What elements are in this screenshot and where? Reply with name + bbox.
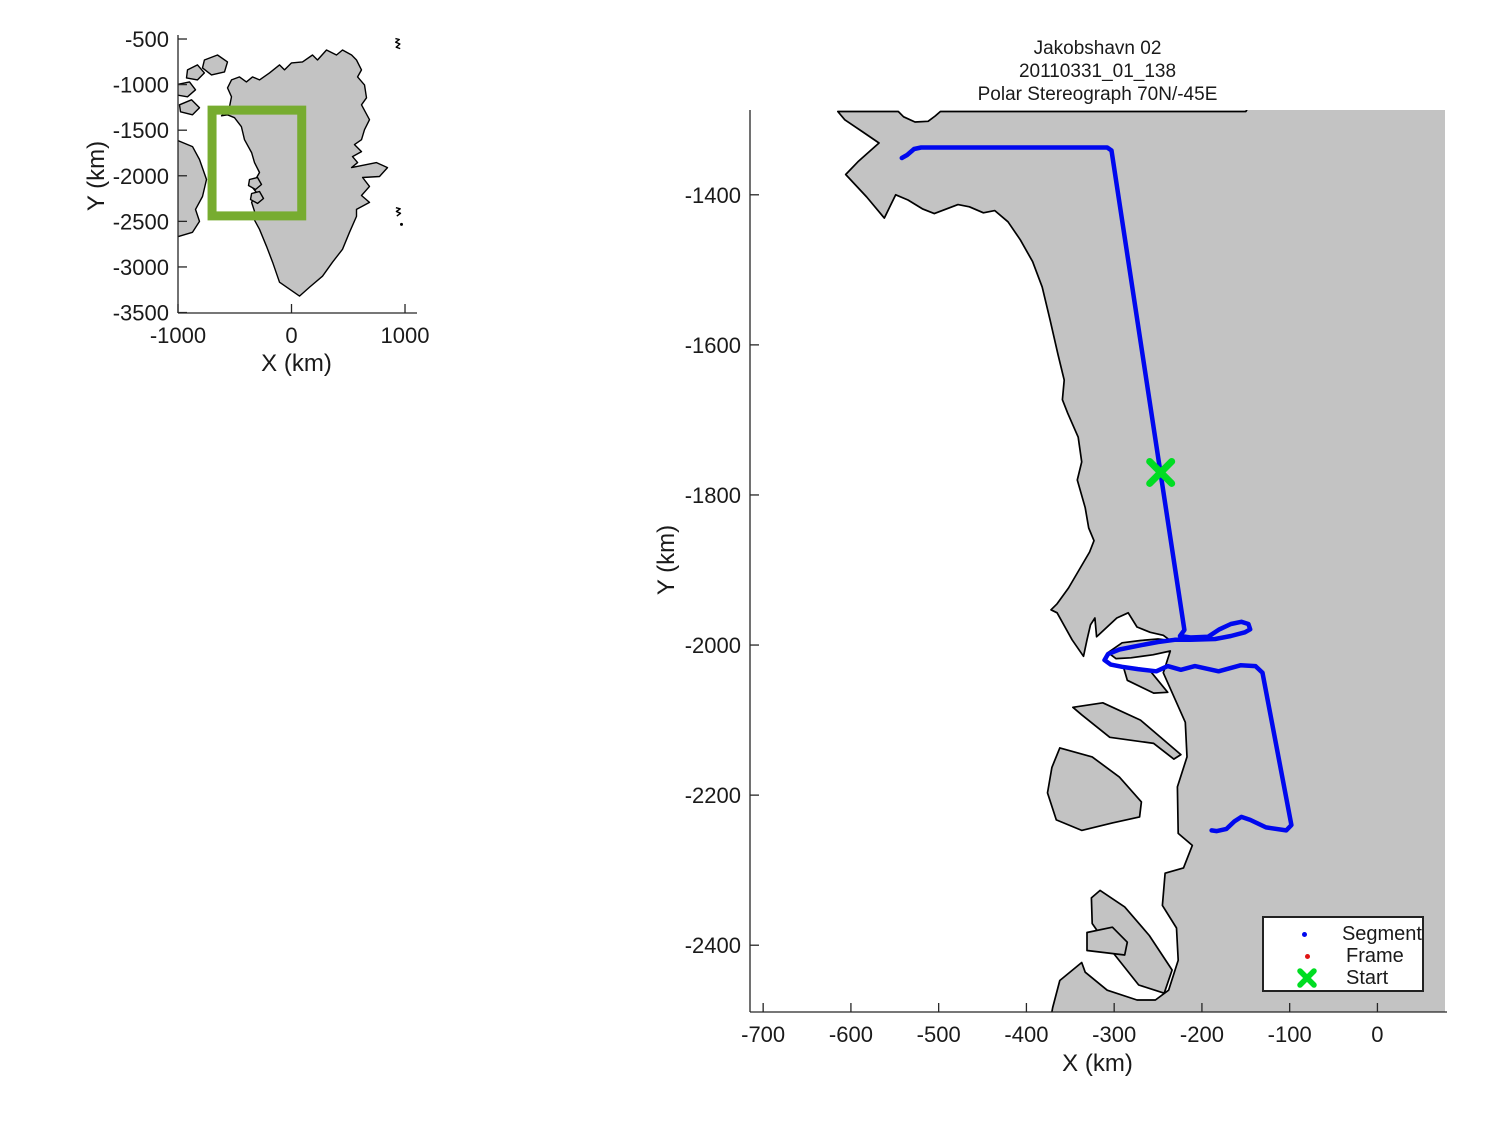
- tick-label: -500: [125, 27, 169, 52]
- coastline: [838, 97, 1492, 1035]
- start-cross-icon: [1282, 968, 1332, 988]
- segment-dot-icon: [1282, 932, 1328, 937]
- coastline: [1073, 703, 1181, 759]
- islet-scribble: [396, 208, 401, 216]
- tick-label: 0: [285, 323, 297, 348]
- inset-x-axis-label: X (km): [178, 350, 415, 378]
- title-line-2: 20110331_01_138: [750, 60, 1445, 83]
- main-map: -700-600-500-400-300-200-1000-1400-1600-…: [685, 97, 1492, 1047]
- main-y-axis-label: Y (km): [653, 515, 681, 605]
- legend-row-segment: Segment: [1264, 923, 1422, 945]
- tick-label: -500: [917, 1022, 961, 1047]
- tick-label: -3500: [113, 301, 169, 326]
- tick-label: -1600: [685, 333, 741, 358]
- tick-label: -1000: [113, 73, 169, 98]
- tick-label: -1500: [113, 118, 169, 143]
- inset-map: -100001000-500-1000-1500-2000-2500-3000-…: [113, 27, 430, 348]
- plot-title: Jakobshavn 02 20110331_01_138 Polar Ster…: [750, 37, 1445, 106]
- map-content: [176, 39, 403, 297]
- tick-label: -600: [829, 1022, 873, 1047]
- tick-label: 0: [1371, 1022, 1383, 1047]
- coastline: [187, 65, 205, 80]
- legend: Segment Frame Start: [1262, 916, 1424, 992]
- frame-dot-icon: [1282, 954, 1332, 959]
- tick-label: -3000: [113, 255, 169, 280]
- tick-label: -2200: [685, 783, 741, 808]
- inset-y-axis-label: Y (km): [83, 131, 111, 221]
- legend-row-start: Start: [1264, 967, 1422, 989]
- coastline: [176, 140, 207, 238]
- tick-label: -2000: [113, 164, 169, 189]
- tick-label: -200: [1180, 1022, 1224, 1047]
- tick-label: -700: [741, 1022, 785, 1047]
- coastline: [203, 55, 228, 75]
- tick-label: -1400: [685, 183, 741, 208]
- tick-label: -2500: [113, 209, 169, 234]
- title-line-1: Jakobshavn 02: [750, 37, 1445, 60]
- tick-label: -300: [1092, 1022, 1136, 1047]
- map-content: [838, 97, 1492, 1035]
- coastline: [1048, 748, 1142, 831]
- tick-label: -2400: [685, 933, 741, 958]
- legend-label-start: Start: [1346, 967, 1388, 989]
- tick-label: -1000: [150, 323, 206, 348]
- tick-label: -2000: [685, 633, 741, 658]
- legend-label-segment: Segment: [1342, 923, 1422, 945]
- coastline: [180, 100, 200, 115]
- legend-row-frame: Frame: [1264, 945, 1422, 967]
- main-x-axis-label: X (km): [750, 1050, 1445, 1078]
- matlab-figure: -100001000-500-1000-1500-2000-2500-3000-…: [0, 0, 1500, 1125]
- tick-label: 1000: [381, 323, 430, 348]
- islet-mark: [400, 223, 403, 226]
- legend-label-frame: Frame: [1346, 945, 1404, 967]
- tick-label: -100: [1268, 1022, 1312, 1047]
- tick-label: -1800: [685, 483, 741, 508]
- title-line-3: Polar Stereograph 70N/-45E: [750, 83, 1445, 106]
- tick-label: -400: [1004, 1022, 1048, 1047]
- islet-scribble: [395, 39, 400, 49]
